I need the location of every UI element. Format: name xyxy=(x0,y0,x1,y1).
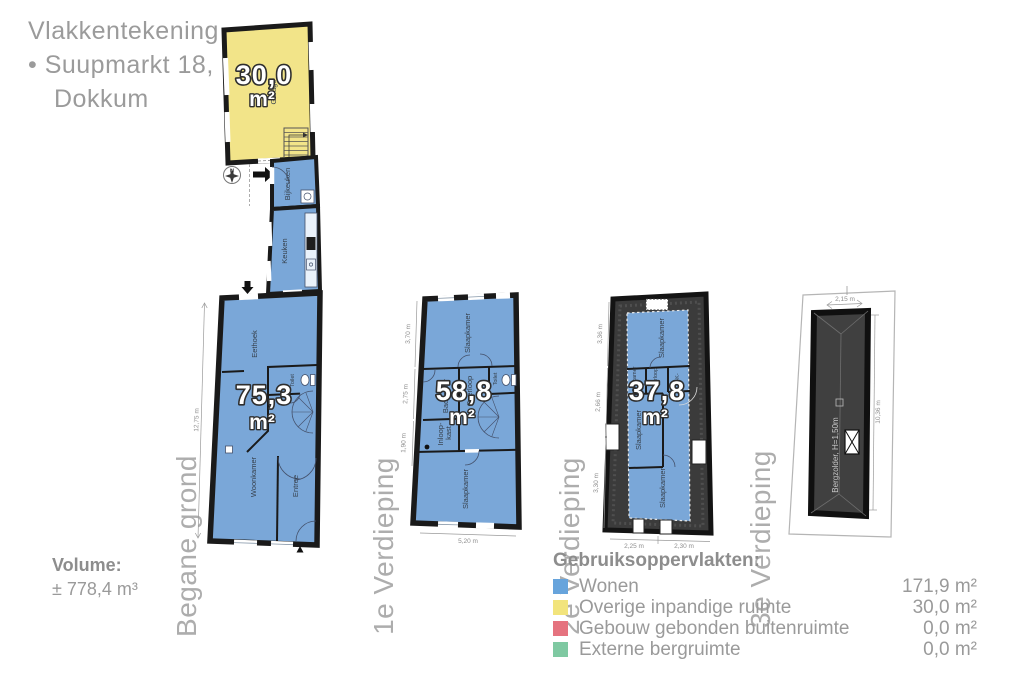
compass-north-label: N xyxy=(230,169,234,175)
legend-value-wonen: 171,9 m² xyxy=(902,576,977,598)
legend-row-overige: Overige inpandige ruimte 30,0 m² xyxy=(553,597,977,618)
dormer-window-right xyxy=(692,440,706,464)
room-label-bergzolder: Bergzolder, H=1,50m xyxy=(831,417,840,493)
room-label-bijkeuken: Bijkeuken xyxy=(283,168,292,201)
area-unit-begane-grond: m² xyxy=(249,411,275,434)
svg-text:2,15 m: 2,15 m xyxy=(835,296,855,303)
svg-text:3,30 m: 3,30 m xyxy=(593,473,601,493)
dormer-window-left xyxy=(606,424,619,450)
room-label-eethoek: Eethoek xyxy=(250,330,259,358)
svg-text:5,20 m: 5,20 m xyxy=(458,538,478,545)
legend-swatch-buitenruimte xyxy=(553,621,568,636)
legend: Gebruiksoppervlakten: Wonen 171,9 m² Ove… xyxy=(553,550,977,660)
rear-opening-left xyxy=(633,519,644,533)
volume-label: Volume: xyxy=(52,553,138,577)
toilet-fixture-icon xyxy=(502,375,510,386)
garage-area-unit: m² xyxy=(249,88,275,111)
verdieping2-block: Slaapkamer Badkamer Overloop -K- Slaapka… xyxy=(605,294,711,534)
dormer-window-front xyxy=(646,299,668,310)
floorplan-page: Vlakkentekening • Suupmarkt 18, Dokkum B… xyxy=(0,0,1024,683)
chimney-icon xyxy=(845,430,859,454)
legend-value-buitenruimte: 0,0 m² xyxy=(923,618,977,640)
legend-label-wonen: Wonen xyxy=(579,576,891,598)
legend-heading: Gebruiksoppervlakten: xyxy=(553,550,977,572)
room-keuken: Keuken xyxy=(268,206,320,294)
room-label-slaapkamer-voor: Slaapkamer xyxy=(463,312,472,353)
floor-label-1e-verdieping: 1e Verdieping xyxy=(368,457,399,635)
area-value-begane-grond: 75,3 xyxy=(236,380,293,410)
garage-area-value: 30,0 xyxy=(236,60,293,90)
verdieping1-block: Slaapkamer Badkamer Overloop Toilet Inlo… xyxy=(413,295,519,527)
floorplan-begane-grond: Begane grond xyxy=(171,24,320,637)
toilet-fixture-icon xyxy=(301,375,309,386)
begane-grond-main-block: Eethoek Hal Toilet Woonkamer Entree 75,3… xyxy=(210,281,320,553)
door-arrow-icon xyxy=(242,281,254,294)
room-garage: Garage 30,0 m² xyxy=(224,24,313,163)
room-label-toilet: Toilet xyxy=(493,372,499,385)
floorplan-1e-verdieping: 1e Verdieping xyxy=(368,295,519,635)
volume-block: Volume: ± 778,4 m³ xyxy=(52,553,138,601)
rear-opening-right xyxy=(660,520,672,534)
legend-label-buitenruimte: Gebouw gebonden buitenruimte xyxy=(579,618,912,640)
legend-row-bergruimte: Externe bergruimte 0,0 m² xyxy=(553,639,977,660)
room-label-woonkamer: Woonkamer xyxy=(249,456,258,497)
svg-text:3,70 m: 3,70 m xyxy=(405,324,413,344)
room-label-slaapkamer-voor: Slaapkamer xyxy=(657,317,666,358)
area-value-2e: 37,8 xyxy=(629,376,686,406)
area-value-1e: 58,8 xyxy=(436,376,493,406)
legend-swatch-wonen xyxy=(553,579,568,594)
svg-text:10,36 m: 10,36 m xyxy=(875,400,882,424)
svg-text:1,90 m: 1,90 m xyxy=(400,433,408,453)
dimension-2e-bottom: 2,25 m 2,30 m xyxy=(610,536,710,550)
svg-text:2,75 m: 2,75 m xyxy=(402,384,410,404)
legend-value-overige: 30,0 m² xyxy=(913,597,977,619)
area-unit-1e: m² xyxy=(449,406,475,429)
legend-row-wonen: Wonen 171,9 m² xyxy=(553,576,977,597)
legend-label-overige: Overige inpandige ruimte xyxy=(579,597,902,619)
compass-icon: N xyxy=(224,167,241,184)
volume-value: ± 778,4 m³ xyxy=(52,577,138,601)
svg-text:2,66 m: 2,66 m xyxy=(595,392,603,412)
legend-swatch-bergruimte xyxy=(553,642,568,657)
room-label-entree: Entree xyxy=(291,475,300,497)
legend-row-buitenruimte: Gebouw gebonden buitenruimte 0,0 m² xyxy=(553,618,977,639)
room-label-keuken: Keuken xyxy=(280,238,289,263)
svg-text:12,75 m: 12,75 m xyxy=(193,408,201,432)
dimension-1e-bottom: 5,20 m xyxy=(420,533,516,545)
svg-text:2,30 m: 2,30 m xyxy=(674,543,694,550)
room-bijkeuken: Bijkeuken xyxy=(272,157,318,209)
dimension-1e-left: 3,70 m 2,75 m 1,90 m xyxy=(400,301,417,466)
legend-label-bergruimte: Externe bergruimte xyxy=(579,639,912,661)
legend-swatch-overige xyxy=(553,600,568,615)
svg-text:2,25 m: 2,25 m xyxy=(624,543,644,550)
area-unit-2e: m² xyxy=(642,406,668,429)
legend-value-bergruimte: 0,0 m² xyxy=(923,639,977,661)
room-label-slaapkamer-achter: Slaapkamer xyxy=(658,467,667,508)
svg-text:3,36 m: 3,36 m xyxy=(597,324,605,344)
room-label-slaapkamer-achter: Slaapkamer xyxy=(461,468,470,509)
floor-label-begane-grond: Begane grond xyxy=(171,455,202,637)
